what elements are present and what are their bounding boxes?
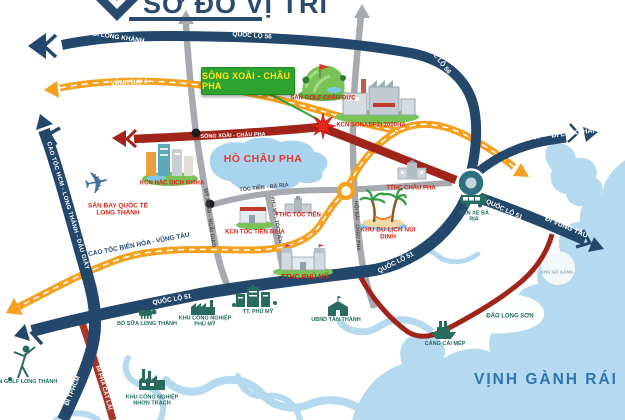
palm-island-nui-dinh-icon <box>359 186 407 230</box>
orange-arrow-west <box>44 81 59 98</box>
landmark-label-kcn-sonadezi: KCN SONADEZI 2000HA <box>336 123 405 130</box>
red-arrow-west <box>112 130 126 147</box>
landmark-label-san-bay-long-thanh: SÂN BAY QUỐC TẾ LONG THÀNH <box>85 203 151 218</box>
castle-tthc-phu-my-icon <box>271 244 335 278</box>
water-label-vinh-ganh-rai: VỊNH GÀNH RÁI <box>474 371 618 389</box>
landmark-label-kcn-hac-dich: KCN HẮC DỊCH 600HA <box>140 181 204 188</box>
landmark-label-tthc-phu-my: TTHC PHÚ MỸ <box>281 274 329 282</box>
landmark-label-bo-sua-long-thanh: BÒ SỮA LONG THÀNH <box>117 321 177 327</box>
project-highlight-box: SÔNG XOÀI - CHÂU PHA <box>201 67 295 95</box>
factory-phu-my-icon <box>188 298 218 316</box>
landmark-label-tthc-toc-tien: TTHC TÓC TIÊN <box>275 213 321 220</box>
landmark-label-nui-dinh: KHU DU LỊCH NÚI DINH <box>359 227 417 242</box>
golfer-icon <box>4 342 40 382</box>
orange-roundabout <box>339 184 353 198</box>
landmark-label-khu-go-gang: KHU GÒ GĂNG <box>541 269 574 274</box>
landmark-label-san-golf-long-thanh: SÂN GOLF LONG THÀNH <box>0 379 57 385</box>
landmark-label-ubnd-tan-thanh: UBND TÂN THÀNH <box>311 317 361 323</box>
landmark-label-kcn-toc-tien: KCN TÓC TIÊN 60HA <box>225 230 285 237</box>
gray-arrow-north-2 <box>354 4 370 18</box>
landmark-label-kcn-phu-my: KHU CÔNG NGHIỆP PHÚ MỸ <box>178 316 232 329</box>
title-underline <box>129 17 262 21</box>
landmark-label-cang-cai-mep: CẢNG CÁI MÉP <box>425 341 466 347</box>
bus-icon <box>459 192 489 209</box>
factory-nhon-trach-icon <box>136 366 168 392</box>
landmark-label-san-golf-chau-duc: SÂN GOLF CHÂU ĐỨC <box>290 96 355 103</box>
buildings-hac-dich-icon <box>140 136 200 186</box>
building-tthc-chau-pha-icon <box>392 160 432 186</box>
location-map: SƠ ĐỒ VỊ TRÍ SÔNG XOÀI - CHÂU PHA <box>0 0 625 420</box>
cow-icon <box>136 306 158 320</box>
landmark-label-ben-xe-ba-ria: BẾN XE BÀ RỊA <box>456 211 492 224</box>
ship-icon <box>428 318 458 341</box>
ubnd-building-icon <box>323 296 353 318</box>
landmark-label-kcn-nhon-trach: KHU CÔNG NGHIỆP NHƠN TRẠCH <box>122 395 182 408</box>
landmark-label-tthc-chau-pha: TTHC CHÂU PHA <box>386 186 435 193</box>
town-tt-phu-my-icon <box>232 284 278 309</box>
project-label: SÔNG XOÀI - CHÂU PHA <box>202 71 294 91</box>
landmark-label-tt-phu-my: TT. PHÚ MỸ <box>243 309 274 315</box>
water-label-ho-chau-pha: HỒ CHÂU PHA <box>224 153 303 165</box>
island-go-gang <box>541 251 575 285</box>
water-river-arm-top <box>545 144 602 207</box>
landmark-label-dao-long-son: ĐẢO LONG SƠN <box>486 314 533 321</box>
